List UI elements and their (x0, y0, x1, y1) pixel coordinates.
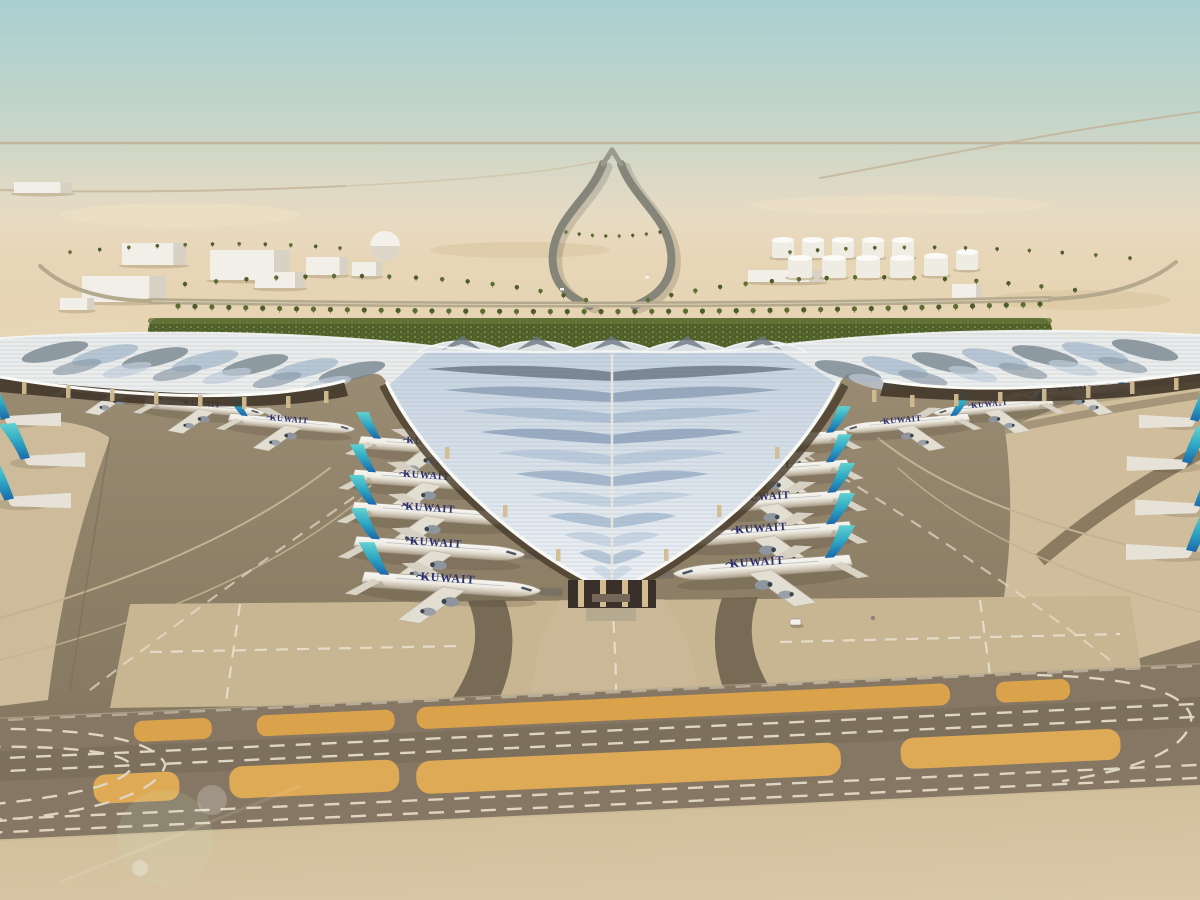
palm-canopy (1021, 302, 1026, 307)
palm-canopy (974, 279, 978, 283)
warehouse-shade-face (295, 272, 305, 288)
palm-canopy (183, 282, 187, 286)
fuel-tank-top (862, 237, 884, 243)
palm-canopy (289, 243, 293, 247)
facade-column (66, 386, 71, 398)
palm-canopy (751, 308, 756, 313)
facade-column (110, 389, 115, 401)
palm-canopy (970, 303, 975, 308)
palm-canopy (303, 274, 307, 278)
warehouse-shade-face (376, 262, 382, 276)
palm-canopy (264, 242, 268, 246)
fuel-tank-top (892, 237, 914, 243)
palm-canopy (192, 304, 197, 309)
fuel-tank-top (956, 249, 978, 255)
palm-canopy (277, 306, 282, 311)
palm-canopy (1037, 301, 1042, 306)
palm-canopy (226, 305, 231, 310)
airport-aerial-rendering: Aerial architectural rendering of Kuwait… (0, 0, 1200, 900)
palm-canopy (683, 309, 688, 314)
palm-canopy (362, 307, 367, 312)
palm-canopy (784, 307, 789, 312)
facade-column (664, 549, 669, 561)
fuel-tank-top (856, 255, 880, 261)
palm-canopy (788, 250, 792, 254)
palm-canopy (869, 306, 874, 311)
palm-canopy (882, 275, 886, 279)
palm-canopy (615, 309, 620, 314)
palm-canopy (646, 298, 650, 302)
palm-canopy (816, 248, 820, 252)
facade-column (1042, 389, 1047, 401)
facade-column (1130, 382, 1135, 394)
facade-column (198, 395, 203, 407)
facade-column (717, 505, 722, 517)
palm-canopy (645, 232, 648, 235)
facade-column (286, 396, 291, 408)
palm-canopy (127, 246, 131, 250)
palm-canopy (412, 308, 417, 313)
palm-canopy (531, 309, 536, 314)
palm-canopy (564, 230, 567, 233)
palm-canopy (669, 293, 673, 297)
fuel-tank-top (924, 253, 948, 259)
aircraft-part (540, 587, 563, 596)
palm-canopy (497, 309, 502, 314)
palm-canopy (1039, 284, 1043, 288)
facade-column (242, 397, 247, 409)
palm-canopy (328, 307, 333, 312)
warehouse-shade-face (60, 182, 72, 193)
palm-canopy (538, 289, 542, 293)
palm-canopy (693, 288, 697, 292)
palm-canopy (919, 305, 924, 310)
palm-canopy (658, 230, 661, 233)
palm-canopy (156, 244, 160, 248)
palm-canopy (582, 309, 587, 314)
palm-canopy (936, 304, 941, 309)
palm-canopy (1006, 281, 1010, 285)
palm-canopy (440, 277, 444, 281)
palm-canopy (387, 274, 391, 278)
airport-rendering-stage: Aerial architectural rendering of Kuwait… (0, 0, 1200, 900)
palm-canopy (770, 279, 774, 283)
palm-canopy (345, 307, 350, 312)
palm-canopy (68, 250, 72, 254)
palm-canopy (446, 308, 451, 313)
palm-canopy (953, 304, 958, 309)
facade-column (872, 390, 877, 402)
palm-canopy (548, 309, 553, 314)
palm-canopy (886, 306, 891, 311)
palm-canopy (995, 247, 999, 251)
facade-column (910, 395, 915, 407)
palm-canopy (591, 234, 594, 237)
palm-canopy (818, 307, 823, 312)
palm-canopy (244, 277, 248, 281)
palm-canopy (1073, 288, 1077, 292)
palm-canopy (211, 242, 215, 246)
palm-canopy (853, 275, 857, 279)
palm-canopy (824, 276, 828, 280)
palm-canopy (379, 308, 384, 313)
fuel-tank-top (890, 255, 914, 261)
palm-canopy (243, 305, 248, 310)
facade-column (154, 392, 159, 404)
palm-canopy (584, 298, 588, 302)
fuel-tank-top (802, 237, 824, 243)
palm-canopy (294, 306, 299, 311)
palm-canopy (514, 309, 519, 314)
facade-column (954, 394, 959, 406)
palm-canopy (632, 309, 637, 314)
fuel-tank-top (832, 237, 854, 243)
palm-canopy (360, 274, 364, 278)
palm-canopy (214, 279, 218, 283)
palm-canopy (463, 309, 468, 314)
fuel-tank-top (772, 237, 794, 243)
facade-column (503, 505, 508, 517)
warehouse-shade-face (87, 298, 94, 310)
palm-canopy (700, 308, 705, 313)
facade-column (775, 447, 780, 459)
palm-canopy (903, 245, 907, 249)
palm-canopy (912, 276, 916, 280)
palm-canopy (98, 248, 102, 252)
palm-canopy (237, 242, 241, 246)
facade-column (998, 392, 1003, 404)
warehouse-shade-face (976, 284, 982, 298)
palm-canopy (1094, 253, 1098, 257)
palm-canopy (314, 244, 318, 248)
warehouse-shade-face (340, 257, 348, 275)
warehouse-shade-face (173, 243, 186, 265)
palm-canopy (844, 247, 848, 251)
palm-canopy (801, 307, 806, 312)
palm-canopy (1028, 249, 1032, 253)
palm-canopy (604, 234, 607, 237)
palm-canopy (480, 309, 485, 314)
palm-canopy (414, 275, 418, 279)
palm-canopy (987, 303, 992, 308)
palm-canopy (396, 308, 401, 313)
palm-canopy (598, 309, 603, 314)
palm-canopy (332, 274, 336, 278)
fuel-tank-top (822, 255, 846, 261)
palm-canopy (717, 308, 722, 313)
palm-canopy (338, 246, 342, 250)
palm-canopy (311, 307, 316, 312)
palm-canopy (183, 243, 187, 247)
palm-canopy (902, 305, 907, 310)
palm-canopy (1004, 302, 1009, 307)
palm-canopy (565, 309, 570, 314)
palm-canopy (933, 245, 937, 249)
palm-canopy (274, 275, 278, 279)
palm-canopy (465, 279, 469, 283)
palm-canopy (260, 306, 265, 311)
fuel-tank-top (788, 255, 812, 261)
palm-canopy (429, 308, 434, 313)
palm-canopy (631, 234, 634, 237)
palm-canopy (743, 281, 747, 285)
facade-column (1086, 386, 1091, 398)
palm-canopy (666, 309, 671, 314)
palm-canopy (835, 307, 840, 312)
palm-canopy (718, 285, 722, 289)
palm-canopy (578, 232, 581, 235)
palm-canopy (767, 308, 772, 313)
palm-canopy (852, 306, 857, 311)
facade-column (1174, 378, 1179, 390)
palm-canopy (209, 304, 214, 309)
palm-canopy (490, 282, 494, 286)
facade-column (445, 447, 450, 459)
facade-column (324, 391, 329, 403)
palm-canopy (649, 309, 654, 314)
palm-canopy (515, 285, 519, 289)
facade-column (22, 382, 27, 394)
palm-canopy (873, 246, 877, 250)
palm-canopy (1128, 256, 1132, 260)
palm-canopy (797, 277, 801, 281)
palm-canopy (734, 308, 739, 313)
palm-canopy (618, 234, 621, 237)
palm-canopy (561, 293, 565, 297)
palm-canopy (1060, 251, 1064, 255)
facade-column (556, 549, 561, 561)
palm-canopy (175, 303, 180, 308)
palm-canopy (964, 246, 968, 250)
palm-canopy (943, 277, 947, 281)
